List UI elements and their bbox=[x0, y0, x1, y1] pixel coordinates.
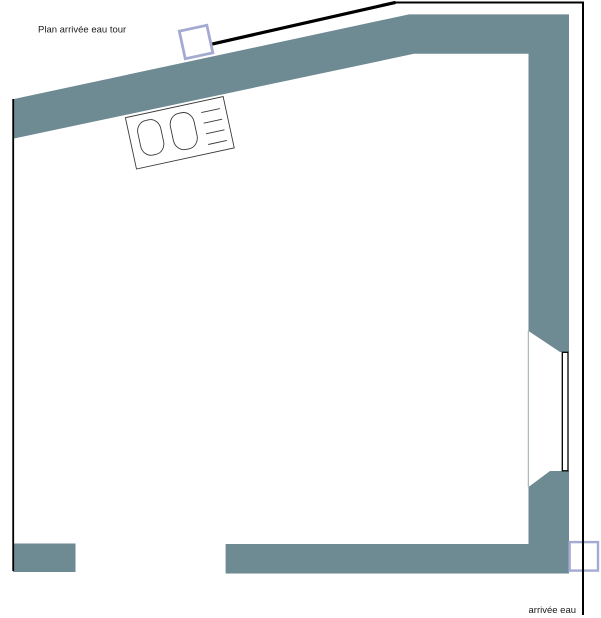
svg-text:arrivée eau: arrivée eau bbox=[529, 605, 577, 616]
svg-text:Plan arrivée eau tour: Plan arrivée eau tour bbox=[38, 25, 126, 36]
